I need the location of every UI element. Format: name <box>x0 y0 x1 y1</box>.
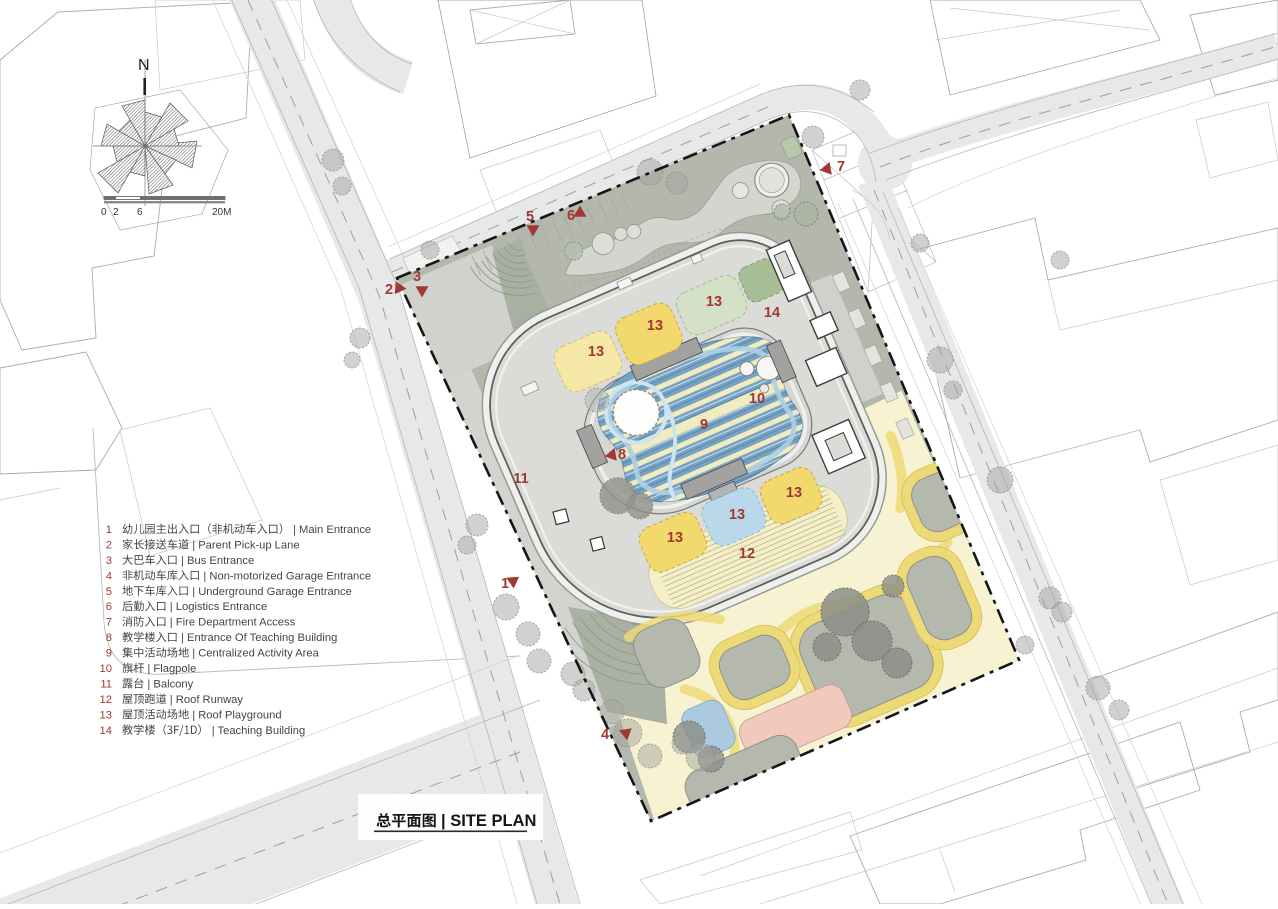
svg-text:13: 13 <box>786 485 802 501</box>
svg-text:3: 3 <box>413 269 421 285</box>
svg-text:14: 14 <box>100 725 112 737</box>
svg-text:4: 4 <box>106 570 112 582</box>
svg-text:13: 13 <box>647 318 663 334</box>
svg-text:| Balcony: | Balcony <box>147 679 193 691</box>
svg-text:6: 6 <box>137 207 143 218</box>
svg-text:12: 12 <box>100 694 112 706</box>
svg-text:9: 9 <box>106 648 112 660</box>
svg-text:9: 9 <box>700 417 708 433</box>
svg-text:6: 6 <box>106 601 112 613</box>
svg-text:| Roof Runway: | Roof Runway <box>170 694 244 706</box>
svg-text:| Flagpole: | Flagpole <box>147 663 196 675</box>
svg-text:7: 7 <box>106 617 112 629</box>
svg-text:5: 5 <box>526 209 534 225</box>
svg-text:10: 10 <box>100 663 112 675</box>
svg-text:| Parent Pick-up Lane: | Parent Pick-up Lane <box>192 540 299 552</box>
svg-text:13: 13 <box>667 530 683 546</box>
svg-text:| Underground Garage Entrance: | Underground Garage Entrance <box>192 586 352 598</box>
svg-text:20M: 20M <box>212 207 231 218</box>
svg-text:| Bus Entrance: | Bus Entrance <box>181 555 254 567</box>
svg-text:13: 13 <box>588 344 604 360</box>
svg-text:N: N <box>138 57 150 74</box>
svg-text:14: 14 <box>764 305 780 321</box>
svg-text:| Fire Department Access: | Fire Department Access <box>170 617 296 629</box>
svg-text:2: 2 <box>385 282 393 298</box>
svg-text:12: 12 <box>739 546 755 562</box>
svg-text:| Centralized Activity Area: | Centralized Activity Area <box>192 648 319 660</box>
svg-text:13: 13 <box>729 507 745 523</box>
svg-text:6: 6 <box>567 208 575 224</box>
svg-text:1: 1 <box>106 524 112 536</box>
svg-text:2: 2 <box>113 207 119 218</box>
svg-text:| SITE PLAN: | SITE PLAN <box>441 812 536 830</box>
svg-text:11: 11 <box>513 471 528 487</box>
svg-text:| Non-motorized Garage Entranc: | Non-motorized Garage Entrance <box>203 570 371 582</box>
svg-text:13: 13 <box>706 294 722 310</box>
svg-text:0: 0 <box>101 207 107 218</box>
svg-text:4: 4 <box>601 727 609 743</box>
svg-text:2: 2 <box>106 540 112 552</box>
svg-text:| Entrance Of Teaching Buildin: | Entrance Of Teaching Building <box>181 632 337 644</box>
svg-text:5: 5 <box>106 586 112 598</box>
svg-text:7: 7 <box>837 159 845 175</box>
svg-text:| Logistics Entrance: | Logistics Entrance <box>170 601 267 613</box>
svg-text:11: 11 <box>100 679 112 691</box>
svg-text:8: 8 <box>618 447 626 463</box>
svg-text:10: 10 <box>749 391 765 407</box>
svg-text:| Roof Playground: | Roof Playground <box>192 709 281 721</box>
svg-text:| Main Entrance: | Main Entrance <box>293 524 371 536</box>
svg-text:| Teaching Building: | Teaching Building <box>212 725 306 737</box>
svg-text:3: 3 <box>106 555 112 567</box>
svg-text:8: 8 <box>106 632 112 644</box>
svg-text:13: 13 <box>100 709 112 721</box>
